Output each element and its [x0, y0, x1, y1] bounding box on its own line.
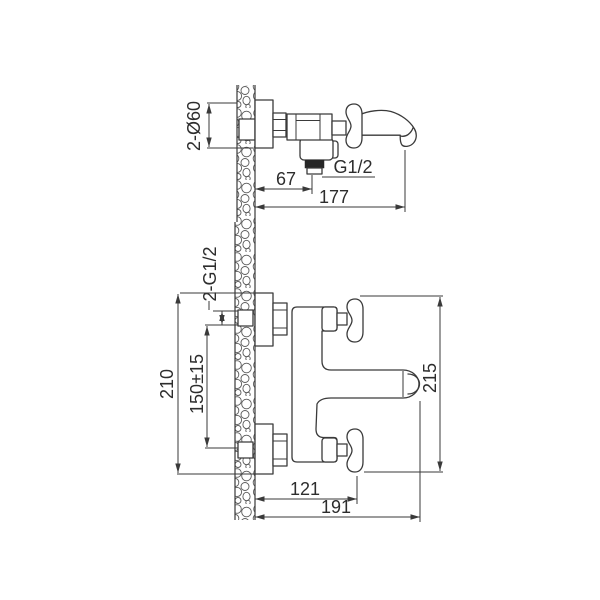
dimension-label: 177: [319, 187, 349, 207]
dimension-label: 191: [321, 497, 351, 517]
faucet-technical-drawing: 2-Ø60 67 177 G1/2: [0, 0, 600, 600]
dimension-label: 150±15: [187, 354, 207, 414]
inlet-connection: [239, 119, 255, 140]
handle-top: [347, 299, 363, 342]
technical-drawing-page: 2-Ø60 67 177 G1/2: [0, 0, 600, 600]
dimension-label: 67: [276, 169, 296, 189]
diverter-housing: [300, 138, 333, 160]
handle-stem: [332, 121, 346, 135]
handle-stem-bottom: [337, 444, 347, 456]
handle-stem-top: [337, 313, 347, 325]
handle-bottom: [347, 429, 363, 472]
escutcheon-plate: [255, 100, 273, 148]
faucet-body: [287, 114, 332, 140]
spout: [359, 110, 416, 146]
outlet-stub: [307, 168, 322, 174]
dimension-label: 210: [157, 369, 177, 399]
dimension-label: 121: [290, 479, 320, 499]
dimension-label: 215: [420, 363, 440, 393]
outlet-thread-band: [305, 160, 324, 168]
valve-cap-bottom: [322, 438, 337, 462]
label-inlet-thread: 2-G1/2: [200, 246, 238, 325]
escutcheon-plate-top: [255, 293, 273, 346]
inlet-connection-hot: [238, 310, 253, 326]
dimension-label: 2-Ø60: [184, 101, 204, 151]
escutcheon-plate-bottom: [255, 424, 273, 474]
side-view: 2-Ø60 67 177 G1/2: [184, 85, 416, 232]
handle: [346, 104, 362, 148]
plan-view: 2-G1/2 150±15 210 215: [157, 222, 443, 522]
hex-nut: [273, 113, 286, 137]
thread-label: G1/2: [333, 157, 372, 177]
dim-outlet-offset: 67: [255, 169, 312, 194]
dim-inlet-centers: 150±15: [187, 326, 238, 448]
inlet-connection-cold: [238, 442, 253, 458]
wall-hatch: [235, 222, 255, 520]
wall-hatch: [237, 85, 255, 232]
valve-cap-top: [322, 307, 337, 331]
hex-nut-top: [273, 303, 287, 335]
hex-nut-bottom: [273, 434, 287, 466]
